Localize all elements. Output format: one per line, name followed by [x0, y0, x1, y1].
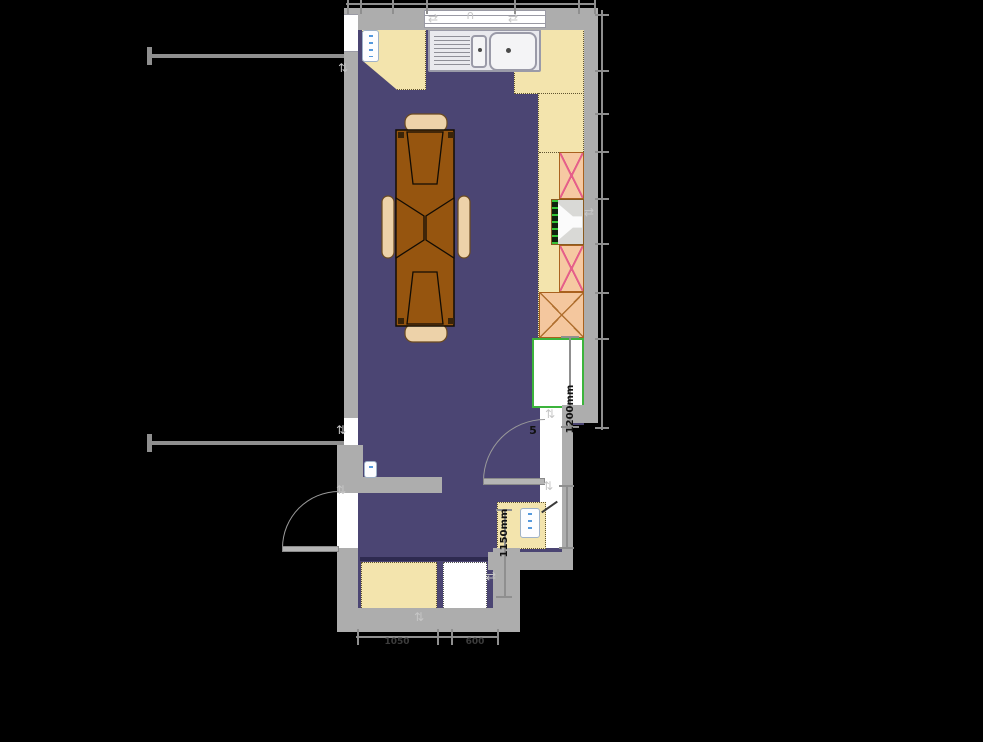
dim-tick [497, 629, 499, 645]
wall-cabinet-upper[interactable] [559, 152, 584, 199]
dining-set[interactable] [380, 106, 472, 350]
opening-arrows-icon: ⇅ [543, 480, 553, 492]
dim-tick [437, 629, 439, 645]
dim-tick [559, 485, 574, 487]
dimension-line-door [566, 486, 568, 548]
door-opening-left[interactable] [337, 493, 358, 548]
window-frame-line [425, 15, 545, 16]
wall-left-lower[interactable] [337, 548, 358, 610]
dim-tick [595, 70, 609, 72]
window-top[interactable] [424, 10, 546, 28]
dimension-label-fridge: 1200mm [565, 379, 577, 439]
sink-unit[interactable] [428, 29, 541, 72]
dim-tick [595, 151, 609, 153]
adjacent-wall-tick-upper [147, 47, 152, 65]
dimension-label-1050: 1050 [377, 637, 417, 647]
dimension-line-top [346, 3, 596, 5]
window-swing-icon: ⇄ [428, 12, 438, 24]
dim-tick [357, 629, 359, 645]
adjacent-wall-line-lower [150, 441, 344, 445]
radiator-fins [528, 513, 532, 533]
radiator-fins [369, 35, 373, 57]
panel-corner-cabinet[interactable] [520, 508, 540, 538]
dim-tick [595, 427, 609, 429]
dim-tick [595, 14, 609, 16]
worktop-edge [360, 557, 493, 561]
chair-seat-top [407, 132, 443, 184]
opening-arrows-icon: ⇅ [414, 611, 424, 623]
opening-left-mid[interactable] [344, 418, 358, 445]
door-leaf-right[interactable] [483, 478, 545, 485]
opening-arrows-icon: ⇅ [545, 408, 555, 420]
adjacent-wall-line-upper [150, 54, 344, 58]
radiator-fins [369, 466, 373, 473]
chair-seat-bottom [407, 272, 443, 324]
wall-stub-interior[interactable] [358, 477, 442, 493]
radiator-top-left[interactable] [362, 30, 379, 62]
opening-arrows-icon: ⇅ [338, 62, 348, 74]
door-swing-arc-left[interactable] [282, 491, 339, 548]
dimension-label-partial: 5 [526, 425, 540, 437]
window-frame-line [425, 23, 545, 24]
oven-unit[interactable] [551, 199, 584, 245]
dim-tick [595, 243, 609, 245]
radiator-mid-left[interactable] [364, 461, 377, 478]
base-unit-bottom-left[interactable] [361, 562, 437, 610]
dim-tick [595, 198, 609, 200]
dim-tick [594, 0, 596, 14]
chair-back-left [382, 196, 394, 258]
dim-tick [451, 629, 453, 645]
window-swing-icon: ⇄ [508, 12, 518, 24]
dimension-label-corner: 1150mm [499, 503, 511, 563]
dimension-line-right [601, 10, 603, 430]
sink-drain-dot [478, 48, 482, 52]
dim-tick [595, 113, 609, 115]
oven-door-swing [558, 202, 582, 242]
dim-tick [360, 0, 362, 14]
oven-control-strip [552, 200, 558, 244]
dimension-label-600: 600 [455, 637, 495, 647]
wall-arrows-icon: ⇄ [584, 206, 594, 218]
window-arch-icon: ∩ [466, 9, 475, 21]
dim-tick [595, 338, 609, 340]
opening-arrows-icon: ⇄ [486, 570, 496, 582]
dim-tick [392, 0, 394, 14]
dim-tick [595, 292, 609, 294]
opening-arrows-icon: ⇅ [336, 424, 346, 436]
chair-back-right [458, 196, 470, 258]
dim-tick [559, 547, 574, 549]
base-corner-cabinet[interactable] [539, 292, 584, 338]
appliance-bottom[interactable] [443, 562, 487, 610]
dim-tick [578, 0, 580, 14]
window-left-opening[interactable] [344, 14, 358, 52]
sink-drainer [434, 36, 470, 67]
adjacent-wall-tick-lower [147, 434, 152, 452]
dim-tick [561, 336, 579, 338]
sink-drain-dot [506, 48, 511, 53]
floorplan-canvas: 1200mm 1150mm 5 1050 600 ⇄ ∩ ⇄ ⇅ ⇅ ⇅ ⇅ ⇅… [0, 0, 983, 742]
door-leaf-left[interactable] [282, 546, 339, 552]
sink-basin-large [489, 32, 537, 71]
wall-cabinet-lower[interactable] [559, 245, 584, 292]
dim-tick [496, 596, 512, 598]
opening-arrows-icon: ⇅ [336, 484, 346, 496]
dim-tick [347, 0, 349, 14]
